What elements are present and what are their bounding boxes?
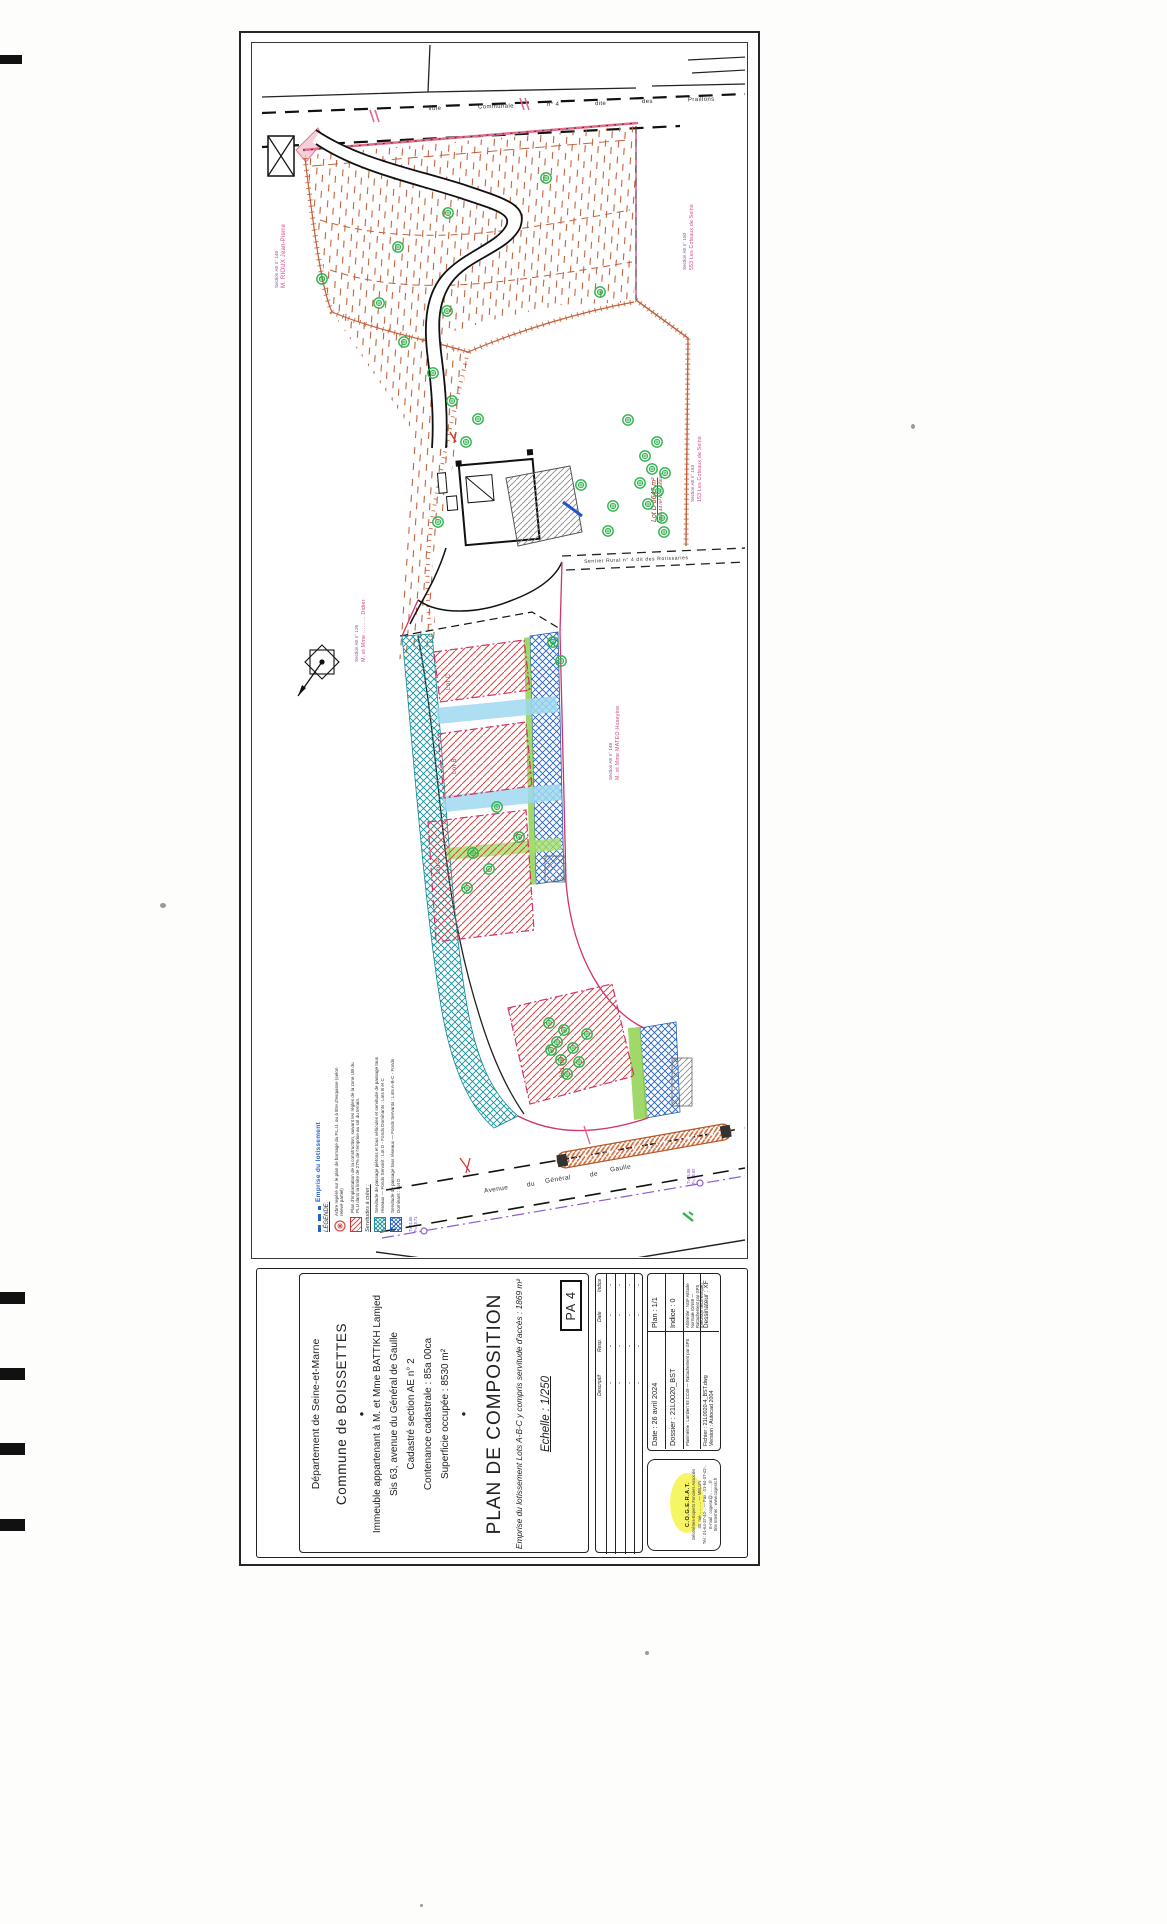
- scan-artifact: [0, 1519, 25, 1531]
- teal-crosshatch-swatch: [374, 1217, 386, 1232]
- firm-line: Site Internet : www.cogerat.fr: [713, 1460, 719, 1549]
- altimetrie-field: Altimétrie : NGF Altitude Normale IGN69 …: [684, 1274, 700, 1332]
- surveyor-firm-box: C.O.G.E.R.A.T. Géomètres-Experts Foncier…: [647, 1459, 721, 1551]
- legend-servitude-blue-row: Servitude de passage tous réseaux — Fond…: [390, 1038, 402, 1232]
- legend-title: LÉGENDE:: [325, 1038, 330, 1232]
- revision-table: Descriptif Resp. Date Indice - - - - - -…: [595, 1273, 643, 1553]
- avenue-label-word: de: [590, 1170, 599, 1178]
- north-arrow: [298, 645, 339, 696]
- road-label-word: des: [642, 99, 653, 105]
- legend-servitude-teal-row: Servitude de passage piétons et tous véh…: [374, 1038, 386, 1232]
- scan-speck: [645, 1651, 649, 1655]
- scan-artifact: [0, 1368, 25, 1380]
- revision-row: - - - -: [625, 1274, 635, 1554]
- scale-label: Echelle : 1/250: [540, 1274, 552, 1554]
- legend-emprise-label: Emprise du lotissement: [316, 1122, 321, 1202]
- legend-servitude-teal-text: Servitude de passage piétons et tous véh…: [374, 1053, 385, 1213]
- title-block-main: Département de Seine-et-Marne Commune de…: [299, 1273, 589, 1553]
- bullet: ●: [459, 1274, 468, 1554]
- legend-servitudes-title: Servitudes à créer :: [366, 1038, 371, 1232]
- plan-title: PLAN DE COMPOSITION: [484, 1274, 506, 1554]
- road-label-word: n° 4: [547, 102, 559, 108]
- scan-artifact: [0, 1292, 25, 1304]
- lot-a-label: Lot A: [436, 838, 445, 874]
- legend-tree-row: Arbre repéré sur le plan de bornage du P…: [334, 1038, 346, 1232]
- legend-implantation-row: Plan d'implantation de la construction, …: [350, 1038, 362, 1232]
- plan-subtitle: Emprise du lotissement Lots A-B-C y comp…: [514, 1274, 524, 1554]
- legend-servitude-blue-text: Servitude de passage tous réseaux — Fond…: [390, 1053, 401, 1213]
- blue-dashed-line-symbol: [318, 1206, 321, 1232]
- talus-hatch-area: [305, 126, 636, 660]
- scan-artifact: [0, 1443, 25, 1455]
- revision-row: - - - -: [634, 1274, 644, 1554]
- sheet-ref-badge: PA 4: [560, 1280, 582, 1331]
- road-label-word: Communale: [478, 104, 514, 111]
- dossier-field: Dossier : 21L0020_BST: [666, 1332, 683, 1449]
- plan-number-field: Plan : 1/1: [648, 1274, 665, 1332]
- revision-row: - - - -: [606, 1274, 616, 1554]
- indice-field: Indice : 0: [666, 1274, 683, 1332]
- road-label-word: Praillons: [688, 97, 715, 104]
- scan-speck: [911, 424, 915, 429]
- bullet: ●: [357, 1274, 366, 1554]
- scan-speck: [160, 903, 166, 908]
- lot-b-label: Lot B: [452, 738, 461, 774]
- scan-speck: [420, 1904, 423, 1907]
- tree-legend-icon: [334, 1220, 346, 1232]
- red-hatch-swatch: [350, 1217, 362, 1232]
- lot-area-label: 921 m²: [560, 1034, 569, 1078]
- scanned-page: { "plan": { "road_top": {"w0":"Voie","w1…: [0, 0, 1167, 1924]
- property-line-3: Cadastré section AE n° 2: [406, 1274, 417, 1554]
- property-line-5: Superficie occupée : 8530 m²: [440, 1274, 451, 1554]
- lot-d-boundary: [636, 126, 688, 546]
- revision-row: - - - -: [615, 1274, 625, 1554]
- avenue-de-gaulle-road: [376, 1123, 745, 1257]
- date-field: Date : 26 avril 2024: [648, 1332, 665, 1449]
- avenue-label-word: du: [527, 1180, 536, 1188]
- blue-crosshatch-swatch: [390, 1217, 402, 1232]
- drawing-info-box: Date : 26 avril 2024 Plan : 1/1 Dossier …: [647, 1273, 721, 1451]
- legend: Emprise du lotissement LÉGENDE: Arbre re…: [316, 1038, 428, 1232]
- planimetrie-field: Planimétrie : Lambert 93 CC49 — Rattache…: [684, 1332, 700, 1449]
- dessinateur-field: Dessinateur : XF: [701, 1274, 719, 1332]
- department-label: Département de Seine-et-Marne: [310, 1274, 322, 1554]
- commune-label: Commune de BOISSETTES: [334, 1274, 349, 1554]
- road-label-word: dite: [595, 101, 606, 107]
- property-line-1: Immeuble appartenant à M. et Mme BATTIKH…: [372, 1274, 383, 1554]
- revision-header-row: Descriptif Resp. Date Indice: [596, 1274, 606, 1554]
- property-line-2: Sis 63, avenue du Général de Gaulle: [389, 1274, 400, 1554]
- scan-artifact: [0, 55, 22, 64]
- legend-emprise-row: Emprise du lotissement: [316, 1038, 321, 1232]
- lot-c-label: Lot C: [446, 654, 455, 690]
- legend-implantation-text: Plan d'implantation de la construction, …: [350, 1053, 361, 1213]
- title-block: Département de Seine-et-Marne Commune de…: [256, 1268, 748, 1558]
- property-line-4: Contenance cadastrale : 85a 00ca: [423, 1274, 434, 1554]
- road-label-word: Voie: [428, 106, 441, 112]
- voie-communale-road: [262, 45, 745, 147]
- version-field: Version : Autocad 2004: [709, 1335, 715, 1446]
- legend-tree-text: Arbre repéré sur le plan de bornage du P…: [334, 1056, 345, 1216]
